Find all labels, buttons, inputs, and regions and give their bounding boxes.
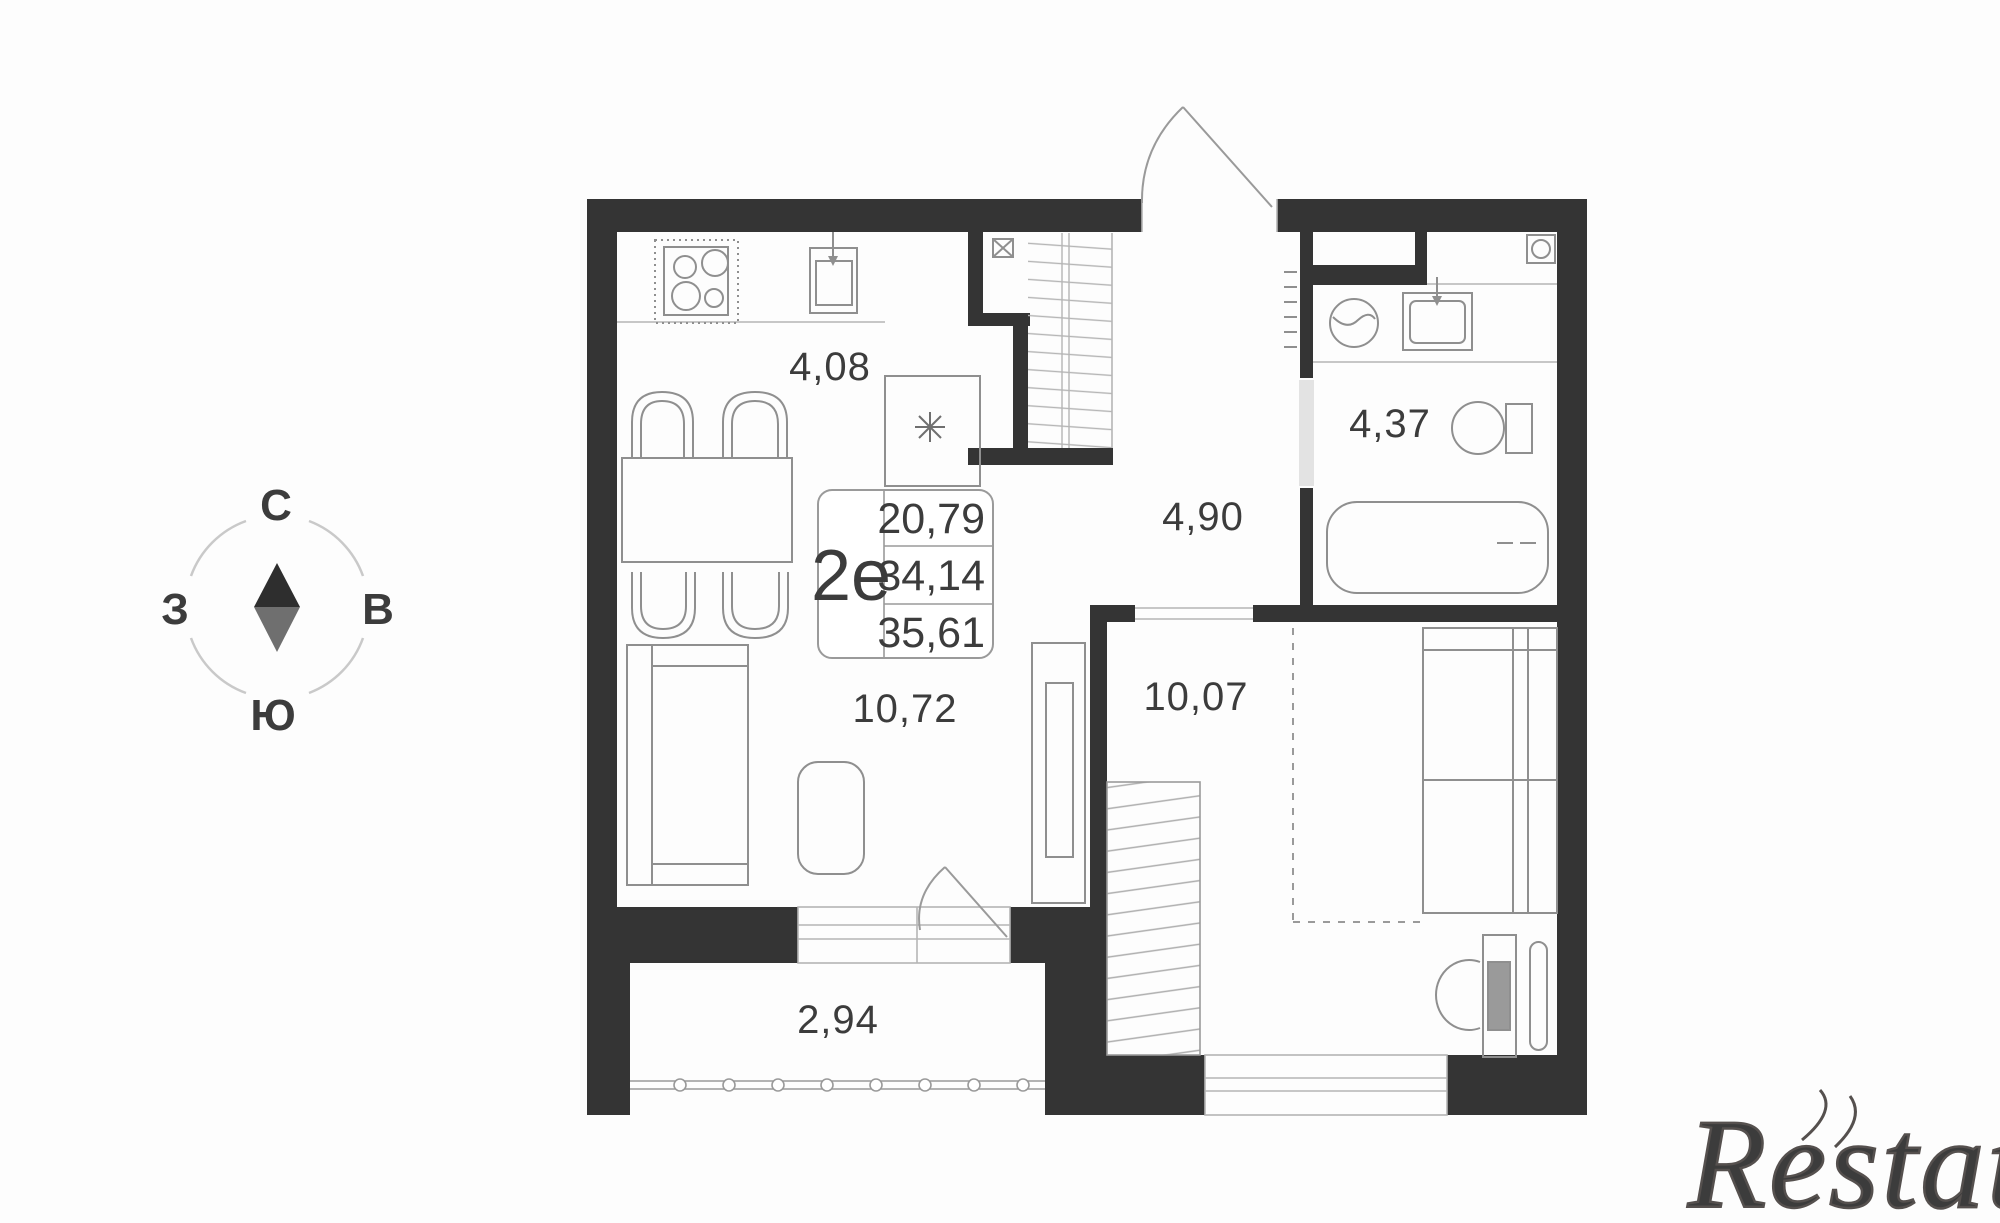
compass-label-west: З bbox=[161, 585, 189, 634]
balcony-window-frame bbox=[798, 907, 1010, 963]
compass-rose: С В Ю З bbox=[161, 481, 394, 740]
bathtub-outline bbox=[1327, 502, 1548, 593]
wall-shaft-left bbox=[968, 232, 983, 325]
bathroom-sink bbox=[1403, 277, 1472, 350]
stove bbox=[655, 240, 738, 323]
wall-top-left bbox=[587, 199, 1142, 232]
kitchen-sink-bowl bbox=[816, 261, 852, 305]
wall-balcony-right bbox=[1045, 963, 1090, 1115]
balcony-area-label: 2,94 bbox=[797, 998, 879, 1042]
coffee-table bbox=[798, 762, 864, 874]
sofa-outline bbox=[627, 645, 748, 885]
compass-needle-south bbox=[254, 607, 300, 652]
bedroom-window-frame bbox=[1205, 1055, 1447, 1115]
wall-left bbox=[587, 232, 617, 963]
wall-closet-bottom bbox=[968, 448, 1113, 465]
bathroom-area-label: 4,37 bbox=[1349, 402, 1431, 446]
entrance-door-arc bbox=[1142, 107, 1272, 207]
bedroom-zone-dashed-line bbox=[1293, 628, 1423, 922]
sofa bbox=[627, 645, 748, 885]
compass-arc-nw bbox=[191, 521, 246, 576]
balcony-door-arc bbox=[919, 867, 1007, 937]
unit-info-box: 2е 20,79 34,14 35,61 bbox=[811, 490, 993, 658]
wall-board bbox=[1530, 942, 1547, 1050]
wall-bedroom-bottom-left bbox=[1090, 1055, 1205, 1115]
kitchen-area-label: 4,08 bbox=[789, 345, 871, 389]
bed bbox=[1423, 628, 1557, 913]
compass-arc-sw bbox=[191, 638, 246, 693]
chair-inner bbox=[732, 401, 778, 458]
wall-bath-left-upper bbox=[1300, 232, 1313, 378]
watermark-text: Restate bbox=[1687, 1093, 2000, 1223]
wall-hall-bedroom-right bbox=[1253, 605, 1557, 622]
unit-area-1: 20,79 bbox=[877, 495, 985, 543]
wall-shaft-connector bbox=[968, 313, 1030, 326]
compass-needle-north bbox=[254, 563, 300, 607]
wall-top-right bbox=[1277, 199, 1587, 232]
toilet-tank bbox=[1506, 404, 1532, 453]
toilet-bowl bbox=[1452, 402, 1504, 454]
wall-balcony-left bbox=[587, 963, 630, 1115]
kitchen-sink bbox=[810, 232, 857, 313]
compass-label-south: Ю bbox=[250, 691, 295, 740]
duct-shaft bbox=[993, 239, 1013, 257]
wall-living-bottom-right bbox=[1010, 907, 1090, 963]
snowflake-icon bbox=[915, 412, 945, 442]
dining-table bbox=[622, 458, 792, 562]
wall-bedroom-left bbox=[1090, 605, 1107, 1055]
compass-arc-ne bbox=[309, 521, 363, 576]
compass-arc-se bbox=[309, 638, 363, 693]
bathroom-sink-bowl bbox=[1410, 301, 1465, 343]
toilet bbox=[1452, 402, 1532, 454]
stove-outer bbox=[655, 240, 738, 323]
wall-bath-inner-bar bbox=[1308, 265, 1427, 285]
bathroom-door-threshold bbox=[1299, 380, 1314, 486]
chair-inner bbox=[641, 572, 686, 629]
wall-hall-bedroom-cap bbox=[1090, 605, 1135, 622]
watermark: Restate bbox=[1687, 1090, 2000, 1223]
wall-right bbox=[1557, 232, 1587, 1115]
wall-living-bottom-left bbox=[617, 907, 798, 963]
tv-stand bbox=[1032, 643, 1085, 903]
wall-bedroom-bottom-right bbox=[1447, 1055, 1557, 1115]
floor-plan-page: С В Ю З bbox=[0, 0, 2000, 1223]
floor-plan-svg: С В Ю З bbox=[0, 0, 2000, 1223]
bedroom-area-label: 10,07 bbox=[1143, 675, 1248, 719]
burner bbox=[702, 250, 728, 276]
tv-screen bbox=[1046, 683, 1073, 857]
washing-machine-wave bbox=[1333, 315, 1375, 325]
vent-shaft bbox=[1527, 235, 1555, 263]
wall-bath-duct-stub bbox=[1415, 228, 1427, 268]
wall-shaft-right bbox=[1013, 326, 1028, 450]
living-room-area-label: 10,72 bbox=[852, 687, 957, 731]
dining-set bbox=[622, 392, 792, 638]
bathtub bbox=[1327, 502, 1548, 593]
unit-area-2: 34,14 bbox=[877, 552, 985, 600]
burner bbox=[672, 282, 700, 310]
radiator-ticks bbox=[1284, 272, 1297, 347]
bedroom-wardrobe bbox=[1107, 782, 1200, 1055]
desk-chair bbox=[1436, 960, 1480, 1030]
balcony-railing bbox=[630, 1079, 1045, 1091]
chair-inner bbox=[732, 572, 779, 629]
hallway-area-label: 4,90 bbox=[1162, 495, 1244, 539]
unit-area-3: 35,61 bbox=[877, 609, 985, 657]
chair-inner bbox=[641, 401, 684, 458]
compass-label-north: С bbox=[260, 481, 292, 530]
burner bbox=[705, 289, 723, 307]
vent-circle bbox=[1532, 240, 1550, 258]
fridge-body bbox=[885, 376, 980, 486]
compass-label-east: В bbox=[362, 585, 394, 634]
bed-outline bbox=[1423, 628, 1557, 913]
entry-closet bbox=[1028, 233, 1112, 448]
desk-area bbox=[1436, 935, 1547, 1057]
fridge bbox=[885, 376, 980, 486]
desk-equipment bbox=[1488, 962, 1510, 1030]
washing-machine bbox=[1330, 299, 1378, 347]
burner bbox=[674, 256, 696, 278]
wall-bath-left-lower bbox=[1300, 488, 1313, 605]
